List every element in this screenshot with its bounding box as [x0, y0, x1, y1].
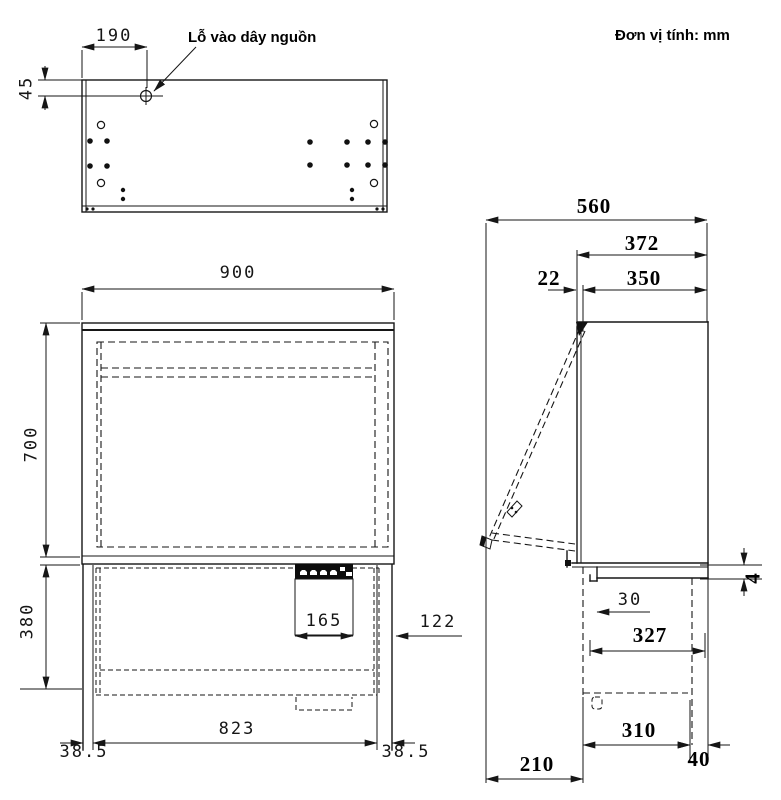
dim-front-900: 900	[220, 265, 257, 282]
control-panel-strip	[295, 564, 353, 579]
dim-front-38-5-right: 38.5	[382, 744, 431, 761]
dim-side-40: 40	[688, 749, 711, 770]
dim-front-122: 122	[420, 614, 457, 631]
dim-front-165: 165	[306, 613, 343, 630]
dim-front-380: 380	[20, 603, 37, 640]
drawing-linework	[0, 0, 781, 800]
top-view-linework	[38, 47, 388, 212]
dim-front-38-5-left: 38.5	[60, 744, 109, 761]
technical-drawing-page: Đơn vị tính: mm Lỗ vào dây nguồn 190 45 …	[0, 0, 781, 800]
dim-side-327: 327	[633, 625, 668, 646]
side-view-linework	[480, 220, 762, 783]
dim-side-30: 30	[618, 592, 642, 609]
dim-front-823: 823	[219, 721, 256, 738]
dim-side-372: 372	[625, 233, 660, 254]
dim-side-210: 210	[520, 754, 555, 775]
dim-front-700: 700	[24, 426, 41, 463]
dim-top-190: 190	[96, 28, 133, 45]
unit-note: Đơn vị tính: mm	[615, 28, 730, 43]
dim-side-350: 350	[627, 268, 662, 289]
dim-side-4: 4	[743, 572, 764, 584]
dim-top-45: 45	[19, 76, 36, 100]
power-hole-label: Lỗ vào dây nguồn	[188, 30, 316, 45]
dim-side-310: 310	[622, 720, 657, 741]
dim-side-560: 560	[577, 196, 612, 217]
dim-side-22: 22	[538, 268, 561, 289]
front-view-linework	[20, 289, 462, 750]
